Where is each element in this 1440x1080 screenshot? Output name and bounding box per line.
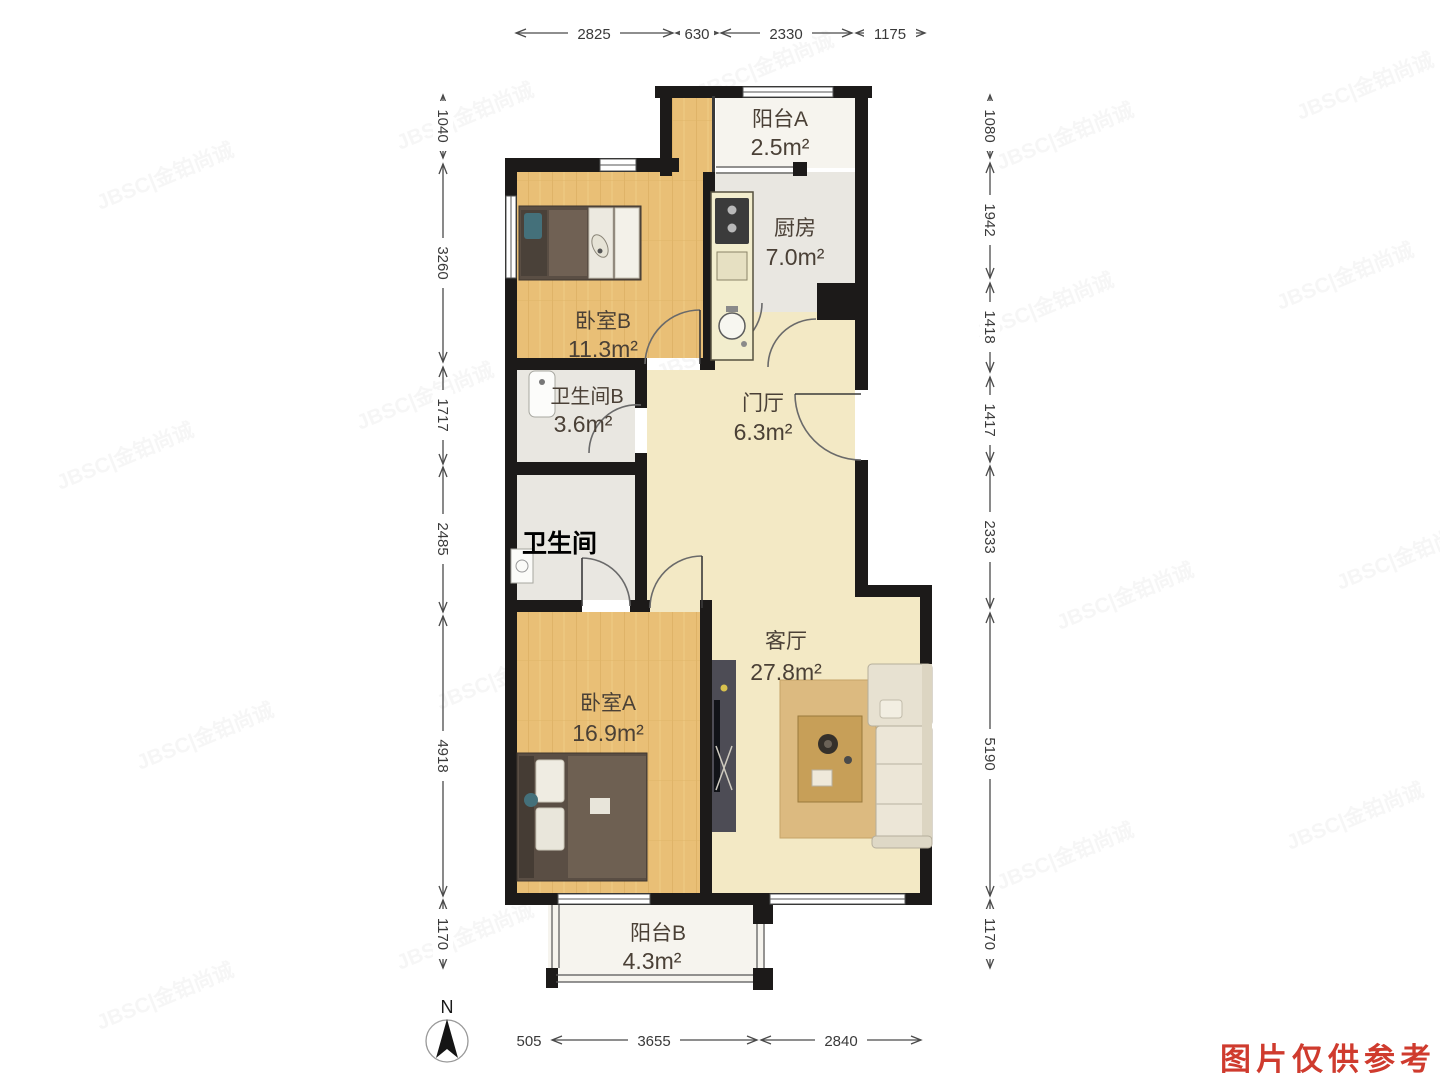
watermark-text: JBSC|金铂尚诚 (93, 138, 237, 215)
dim-bottom-2840: 2840 (824, 1033, 857, 1050)
watermark-text: JBSC|金铂尚诚 (1053, 558, 1197, 635)
north-compass: N (426, 997, 468, 1062)
compass-needle-icon (436, 1019, 458, 1058)
watermark-text: JBSC|金铂尚诚 (393, 898, 537, 975)
dim-top-2825: 2825 (577, 26, 610, 43)
dim-bottom-3655: 3655 (637, 1033, 670, 1050)
dim-left-4918: 4918 (434, 739, 451, 772)
coffee-table (798, 716, 862, 802)
bed-bedroomB (519, 206, 641, 280)
dim-right-1418: 1418 (981, 310, 998, 343)
living-bottom-window (770, 894, 905, 904)
watermark-text: JBSC|金铂尚诚 (53, 418, 197, 495)
dimensions-right: 1080 1942 1418 1417 2333 5190 1170 (980, 95, 1000, 968)
dim-left-3260: 3260 (434, 246, 451, 279)
room-living-name: 客厅 (765, 630, 807, 653)
room-foyer-name: 门厅 (742, 392, 784, 415)
room-bedroomA-name: 卧室A (580, 692, 636, 715)
room-bathroomB-area: 3.6m² (554, 411, 613, 437)
watermark-text: JBSC|金铂尚诚 (993, 818, 1137, 895)
tv-unit (712, 660, 736, 832)
room-living-area: 27.8m² (750, 659, 822, 685)
north-label: N (441, 997, 454, 1017)
dim-top-1175: 1175 (874, 26, 906, 43)
room-kitchen-name: 厨房 (774, 217, 816, 240)
dim-left-1170: 1170 (434, 918, 451, 950)
kitchen-counter (711, 192, 753, 360)
watermark-text: JBSC|金铂尚诚 (1293, 48, 1437, 125)
balconyA-top-window (743, 87, 833, 97)
room-bedroomA-area: 16.9m² (572, 720, 644, 746)
dim-left-1717: 1717 (434, 398, 451, 431)
dim-right-1080: 1080 (981, 109, 998, 142)
room-bathroom-name: 卫生间 (522, 530, 597, 558)
dim-bottom-505: 505 (516, 1033, 541, 1050)
dim-right-5190: 5190 (981, 737, 998, 770)
dimensions-top: 2825 630 2330 1175 (516, 24, 925, 43)
dim-left-1040: 1040 (434, 109, 451, 142)
room-bedroomB-name: 卧室B (575, 310, 631, 333)
floorplan-canvas: JBSC|金铂尚诚 JBSC|金铂尚诚 JBSC|金铂尚诚 JBSC|金铂尚诚 … (0, 0, 1440, 1080)
watermark-text: JBSC|金铂尚诚 (993, 98, 1137, 175)
dimensions-bottom: 505 3655 2840 (516, 1031, 921, 1050)
bedroomB-left-window (506, 196, 516, 278)
floorplan-svg: JBSC|金铂尚诚 JBSC|金铂尚诚 JBSC|金铂尚诚 JBSC|金铂尚诚 … (0, 0, 1440, 1080)
dim-top-2330: 2330 (769, 26, 802, 43)
reference-note: 图片仅供参考 (1220, 1042, 1436, 1077)
room-foyer-area: 6.3m² (734, 419, 793, 445)
room-bathroomB-name: 卫生间B (550, 385, 623, 408)
room-balconyA-name: 阳台A (752, 108, 808, 131)
watermark-text: JBSC|金铂尚诚 (1273, 238, 1417, 315)
sofa (868, 664, 932, 848)
bedroomB-top-window (600, 159, 636, 171)
room-bedroomB-area: 11.3m² (568, 336, 638, 362)
watermark-text: JBSC|金铂尚诚 (93, 958, 237, 1035)
room-balconyB-area: 4.3m² (623, 948, 682, 974)
room-kitchen-area: 7.0m² (766, 244, 825, 270)
room-balconyB-name: 阳台B (630, 922, 686, 945)
watermark-text: JBSC|金铂尚诚 (393, 78, 537, 155)
dim-right-1417: 1417 (981, 403, 998, 436)
bed-bedroomA (517, 753, 647, 881)
dim-right-2333: 2333 (981, 520, 998, 553)
dim-left-2485: 2485 (434, 522, 451, 555)
dim-right-1942: 1942 (981, 203, 998, 236)
watermark-text: JBSC|金铂尚诚 (1283, 778, 1427, 855)
dimensions-left: 1040 3260 1717 2485 4918 1170 (433, 95, 453, 968)
watermark-text: JBSC|金铂尚诚 (1333, 518, 1440, 595)
dim-top-630: 630 (684, 26, 709, 43)
dim-right-1170: 1170 (981, 918, 998, 950)
room-balconyA-area: 2.5m² (751, 134, 810, 160)
bedroomA-balcony-slider (558, 894, 650, 904)
watermark-text: JBSC|金铂尚诚 (133, 698, 277, 775)
watermark-text: JBSC|金铂尚诚 (353, 358, 497, 435)
